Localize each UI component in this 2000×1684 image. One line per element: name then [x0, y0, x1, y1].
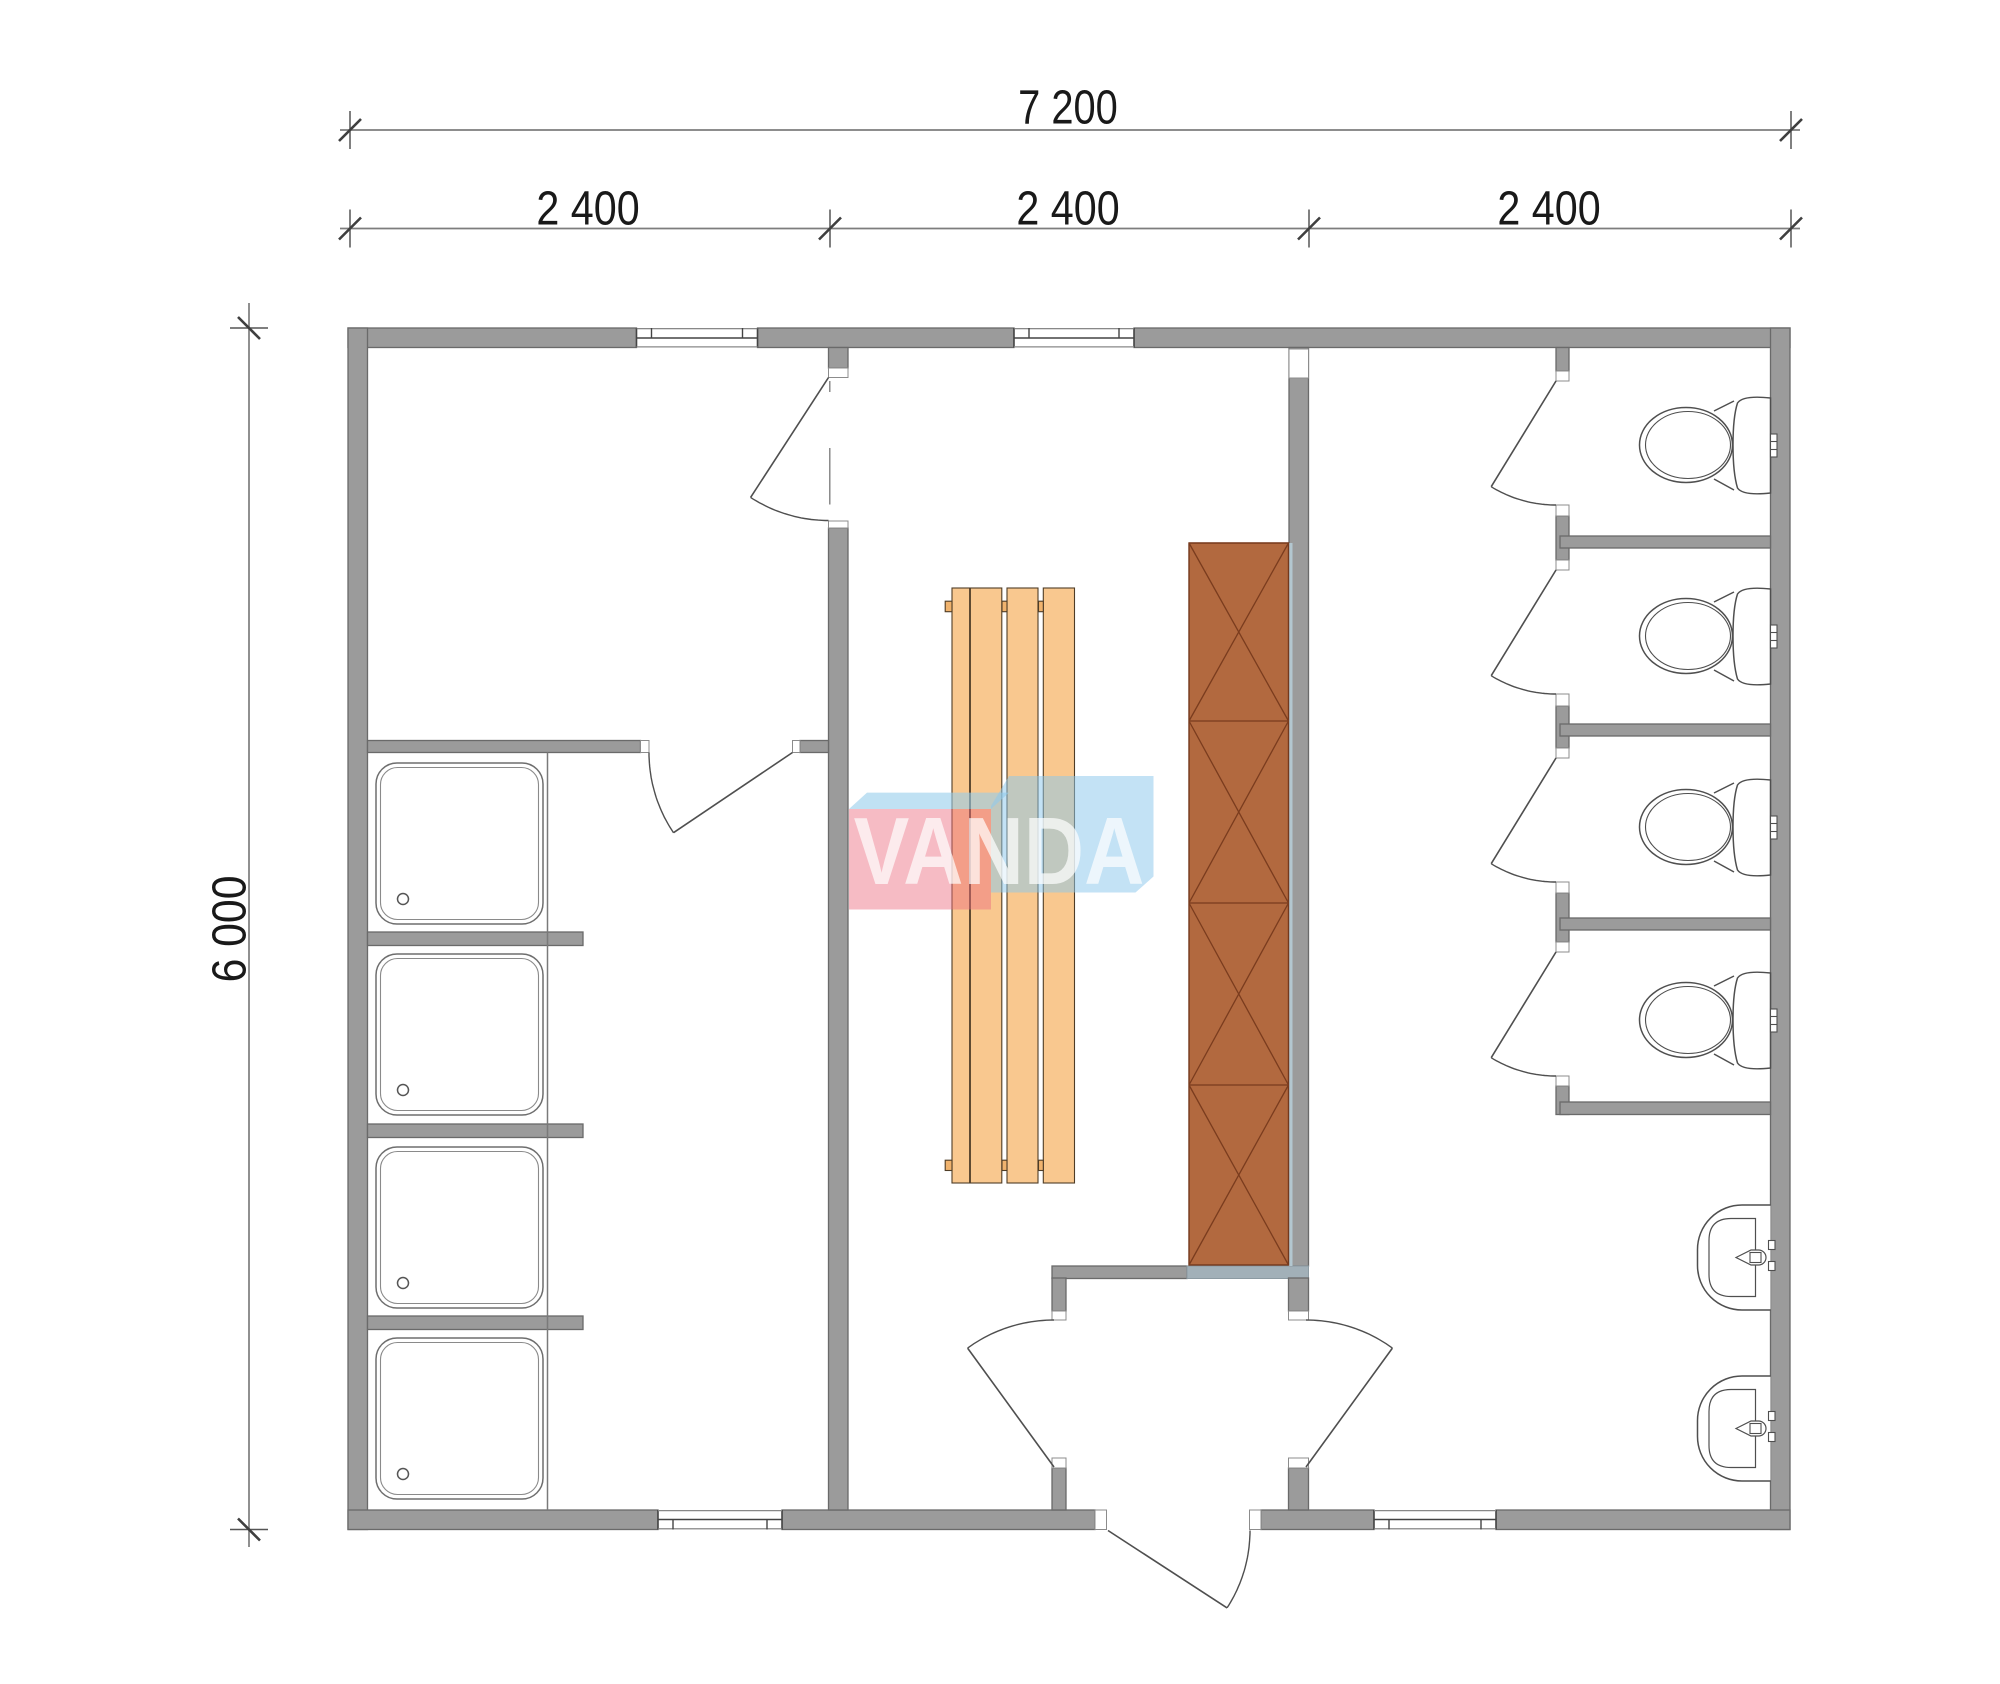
- svg-text:7 200: 7 200: [1018, 81, 1118, 134]
- svg-text:2 400: 2 400: [536, 182, 639, 236]
- svg-text:VANDA: VANDA: [854, 799, 1145, 906]
- svg-text:2 400: 2 400: [1497, 182, 1600, 236]
- svg-text:6 000: 6 000: [202, 876, 256, 983]
- svg-text:2 400: 2 400: [1016, 182, 1119, 236]
